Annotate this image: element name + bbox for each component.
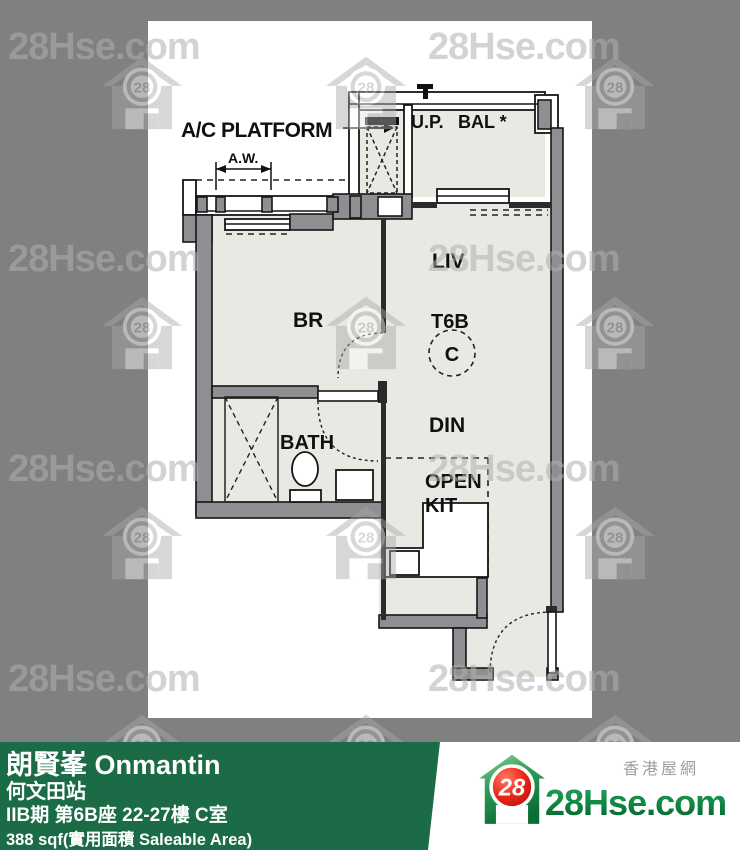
label-up: U.P. xyxy=(411,112,444,132)
label-din: DIN xyxy=(429,414,465,437)
site-name-text: 28Hse.com xyxy=(545,782,726,823)
label-ac-platform: A/C PLATFORM xyxy=(181,119,332,142)
label-br: BR xyxy=(293,309,323,332)
bath-door-leaf xyxy=(318,391,378,401)
site-logo[interactable]: 28 香港屋網 28Hse.com xyxy=(477,752,740,848)
label-kit: KIT xyxy=(425,495,457,517)
footer-bar: 朗賢峯 Onmantin 何文田站 IIB期 第6B座 22-27樓 C室 38… xyxy=(0,742,740,850)
basin-icon xyxy=(336,470,373,500)
label-t6b: T6B xyxy=(431,311,469,333)
toilet-tank xyxy=(290,490,321,502)
sink-icon xyxy=(390,551,419,575)
site-chinese-name: 香港屋網 xyxy=(623,755,699,779)
floorplan-drawing: A/C PLATFORM A.W. U.P. BAL * LIV BR T6B … xyxy=(0,0,740,742)
area-info: 388 sqf(實用面積 Saleable Area) xyxy=(6,826,252,850)
unit-info: IIB期 第6B座 22-27樓 C室 xyxy=(6,800,228,827)
up-access-notch xyxy=(378,197,402,216)
logo-house-icon: 28 xyxy=(477,752,547,826)
entrance-door-leaf xyxy=(548,612,556,673)
page: A/C PLATFORM A.W. U.P. BAL * LIV BR T6B … xyxy=(0,0,740,850)
label-bath: BATH xyxy=(280,432,334,454)
label-bal: BAL * xyxy=(458,112,507,132)
listing-info-banner: 朗賢峯 Onmantin 何文田站 IIB期 第6B座 22-27樓 C室 38… xyxy=(0,742,460,850)
label-unit-letter: C xyxy=(445,344,459,366)
site-wordmark: 28Hse.com xyxy=(545,780,735,826)
label-liv: LIV xyxy=(432,250,465,273)
label-open: OPEN xyxy=(425,471,482,493)
label-aw: A.W. xyxy=(228,150,258,166)
logo-badge-number: 28 xyxy=(498,775,526,801)
toilet-icon xyxy=(292,452,318,486)
